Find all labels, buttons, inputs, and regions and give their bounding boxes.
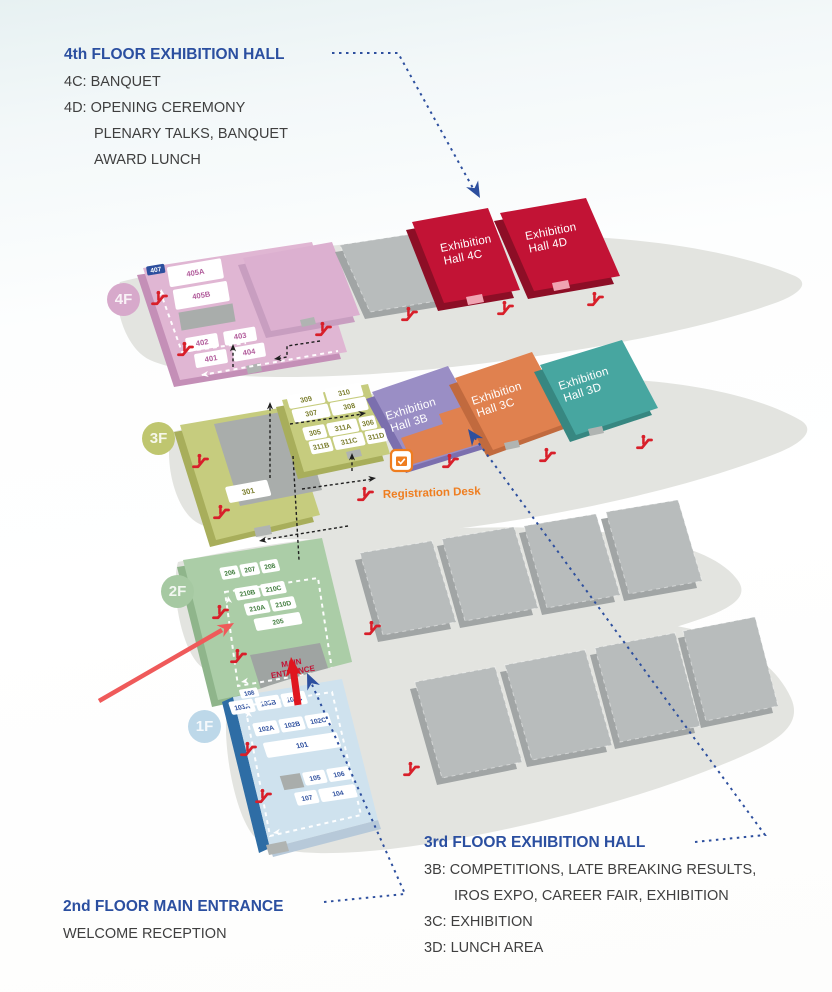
note-3rd-floor-line: 3D: LUNCH AREA [424, 935, 756, 961]
venue-floor-map: Exhibition Hall 4C Exhibition Hall 4D 40… [0, 0, 832, 992]
note-4th-floor-line: AWARD LUNCH [64, 147, 288, 173]
note-3rd-floor-line: IROS EXPO, CAREER FAIR, EXHIBITION [424, 883, 756, 909]
note-4th-floor: 4th FLOOR EXHIBITION HALL 4C: BANQUET 4D… [64, 42, 288, 173]
note-2nd-floor-line: WELCOME RECEPTION [63, 921, 283, 947]
note-3rd-floor-line: 3C: EXHIBITION [424, 909, 756, 935]
floor-badge-3f: 3F [142, 422, 175, 455]
note-4th-floor-title: 4th FLOOR EXHIBITION HALL [64, 42, 288, 68]
floor-badge-2f: 2F [161, 575, 194, 608]
floor-badge-4f: 4F [107, 283, 140, 316]
note-4th-floor-line: PLENARY TALKS, BANQUET [64, 121, 288, 147]
note-4th-floor-line: 4C: BANQUET [64, 69, 288, 95]
note-3rd-floor-line: 3B: COMPETITIONS, LATE BREAKING RESULTS, [424, 857, 756, 883]
registration-desk-icon [391, 450, 412, 471]
note-3rd-floor: 3rd FLOOR EXHIBITION HALL 3B: COMPETITIO… [424, 830, 756, 961]
note-4th-floor-line: 4D: OPENING CEREMONY [64, 95, 288, 121]
note-2nd-floor: 2nd FLOOR MAIN ENTRANCE WELCOME RECEPTIO… [63, 894, 283, 947]
note-2nd-floor-title: 2nd FLOOR MAIN ENTRANCE [63, 894, 283, 920]
floor-badge-1f: 1F [188, 710, 221, 743]
note-3rd-floor-title: 3rd FLOOR EXHIBITION HALL [424, 830, 756, 856]
